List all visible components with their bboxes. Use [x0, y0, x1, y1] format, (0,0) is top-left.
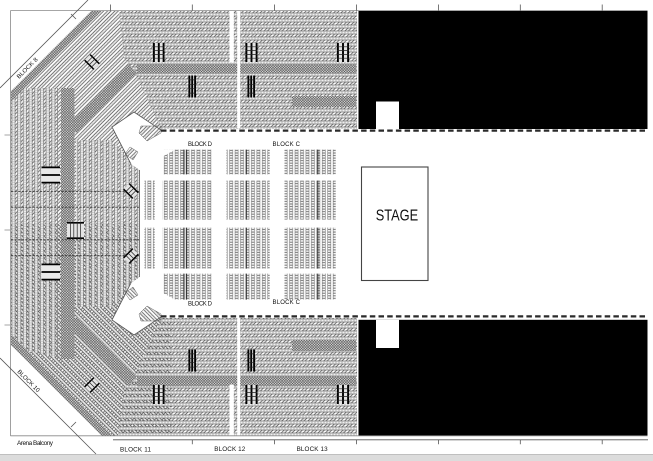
svg-text:STAGE: STAGE [376, 207, 419, 224]
svg-text:BLOCK C: BLOCK C [273, 300, 301, 306]
svg-text:Arena Balcony: Arena Balcony [17, 440, 54, 447]
svg-text:BLOCK D: BLOCK D [188, 142, 213, 148]
svg-text:BLOCK 13: BLOCK 13 [297, 446, 328, 453]
svg-text:BLOCK 11: BLOCK 11 [120, 446, 151, 453]
svg-text:BLOCK D: BLOCK D [188, 302, 213, 308]
svg-text:BLOCK C: BLOCK C [273, 142, 301, 148]
svg-text:BLOCK 12: BLOCK 12 [214, 446, 245, 453]
